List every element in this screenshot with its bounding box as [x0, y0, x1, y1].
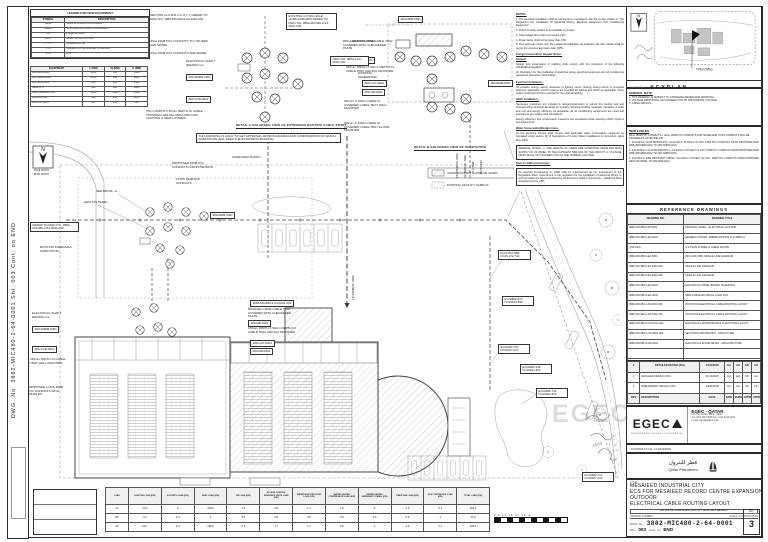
- note-item: 3. Total voltage drop shall not exceed 2…: [516, 34, 624, 37]
- cont-value: END: [663, 527, 673, 532]
- table-row: DF3.43.415.55.80.80.80.60.6121.9: [106, 514, 490, 523]
- table-row: 3882-MIC480-9-CP-0001-004SECTIONS AND DE…: [628, 330, 761, 340]
- title-block: TITLE MESAIEED INDUSTRIAL CITY ECS FOR M…: [626, 479, 762, 537]
- egec-logo: EGEC ENGINEERING HOUSE OF EXPERTISE: [627, 407, 688, 443]
- table-row: CL23.59150.01.62.81.17.551.55.1203.3: [106, 505, 490, 514]
- drawing-sheet: DWG. No. 3882-MIC480-2-64-0001 Sht. 003 …: [0, 0, 768, 542]
- note-item: (1) Regulation for the installation of e…: [516, 71, 624, 78]
- egec-logo-text: EGEC: [633, 417, 671, 431]
- rev-label: REV.: [744, 510, 759, 514]
- note-item: General:: [516, 58, 624, 61]
- vertical-drawing-number: DWG. No. 3882-MIC480-2-64-0001 Sht. 003 …: [11, 222, 17, 418]
- note-item: 3. 4Cx240mm² FIRE RESISTANT CABLE +1Cx12…: [629, 157, 759, 163]
- table-row: 3882-MIC480-9-AD-0001ELECTRICAL ROOM DET…: [628, 339, 761, 349]
- client-name-arabic: قطر للبترول: [668, 460, 697, 467]
- table-row: DL26.76.4155.05.51.70.76.824.55.1230.4: [106, 523, 490, 532]
- table-row: 3882-MIC480-9-EA-0001ELECTRICAL PANEL BO…: [628, 282, 761, 292]
- client-name-english: Qatar Petroleum: [668, 467, 697, 472]
- building: [75, 308, 470, 485]
- equipment-table: EQUIPMENTL (MM)W (MM)H (MM)480-MDB-00011…: [30, 66, 148, 107]
- load-table-panel: LOADLIGHTING LOAD (KW)SOCKETS LOAD (KW)H…: [105, 487, 490, 532]
- legend-panel: LEGEND FOR NEW EQUIPMENT SYMBOLDESCRIPTI…: [30, 9, 150, 59]
- equipment-table-panel: EQUIPMENTL (MM)W (MM)H (MM)480-MDB-00011…: [30, 66, 148, 107]
- egec-logo-triangle-icon: [672, 419, 682, 428]
- table-row: 3882-MIC480-9-EJ-0001(MIC-400)-0001 SING…: [628, 253, 761, 263]
- table-row: 3882-MIC480-9-EJ-0002-002SINGLE LINE DIA…: [628, 272, 761, 282]
- revision-table: 2DETAILED DESIGN (IFA)17/12/2018AHAHKNAH…: [627, 361, 761, 404]
- table-row: 3882-MIC480-9-EA-0002MDB-A DB ELECTRICAL…: [628, 291, 761, 301]
- north-letter: N: [41, 147, 45, 153]
- table-row: ATSATS: [32, 52, 149, 57]
- revision-panel: 2DETAILED DESIGN (IFA)17/12/2018AHAHKNAH…: [626, 360, 762, 406]
- notes-column: NOTES:-1. The electrical installation sh…: [514, 10, 626, 190]
- note-item: HVAC Installation:-: [516, 98, 624, 101]
- client-panel: قطر للبترول Qatar Petroleum: [626, 453, 762, 479]
- cont-label: Cont. on: [649, 528, 660, 532]
- dwg-number-row: DWG. No. 3882-MIC480-2-64-0001: [630, 520, 742, 527]
- detail-b-substation: [388, 24, 512, 178]
- note-item: 1. The electrical installation shall be …: [516, 18, 624, 28]
- keyplan-north-letter: N: [637, 13, 640, 18]
- new-cables-intro: 4Nos 150Ø PVC CONDUITS + 2Nos 150Ø PVC C…: [629, 134, 759, 141]
- keyplan-handwriting: [635, 45, 654, 59]
- revision-box: REV. 3: [743, 509, 760, 535]
- sht-label: Sht.: [630, 528, 635, 532]
- margin-stamp-box: [11, 447, 26, 519]
- scale-bar-ruler: [494, 517, 568, 523]
- reference-drawings-title: REFERENCE DRAWINGS: [627, 205, 761, 214]
- title-line-4: ELECTRICAL CABLE ROUTING LAYOUT: [630, 502, 758, 508]
- note-item: Water Conservation/Design notes:-: [516, 127, 624, 130]
- note-item: 5. This approval covers only the notatio…: [516, 43, 624, 50]
- keyplan-panel: N THIS DWG 4/12/18 KEYPLAN: [626, 6, 762, 88]
- sheet-row: Sht. 003 Cont. on END: [630, 527, 742, 532]
- table-row: LOADLIGHTING LOAD (KW)SOCKETS LOAD (KW)H…: [106, 488, 490, 505]
- note-item: 3. CABLE DETAILS:-: [629, 102, 759, 105]
- load-table: LOADLIGHTING LOAD (KW)SOCKETS LOAD (KW)H…: [105, 487, 490, 532]
- table-row: 3882-MIC480-2-64-0001-002OUTDOOR ELECTRI…: [628, 310, 761, 320]
- dwg-no-value: 3882-MIC480-2-64-0001: [647, 520, 733, 527]
- note-item: Energy Conservation Regular Notes:-: [516, 53, 624, 56]
- rev-value: 3: [749, 519, 754, 529]
- note-item: Energy efficiency and conservation measu…: [516, 118, 624, 125]
- reference-drawings-panel: REFERENCE DRAWINGS DRAWING NO.DRAWING TI…: [626, 204, 762, 360]
- contract-panel: CONTRACT No. LC19194900: [626, 444, 762, 453]
- north-arrow: N: [33, 146, 53, 168]
- note-item: Note for AMR provisioning:-: [516, 162, 624, 165]
- general-note-title: GENERAL NOTE:: [629, 91, 759, 95]
- table-row: [628, 349, 761, 359]
- note-item: All the plumbing fixtures shall comply w…: [516, 132, 624, 142]
- qatar-petroleum-logo: [706, 459, 720, 473]
- table-row: (765-A00)S.S PLAN-POWER & CABLE ROUTE: [628, 243, 761, 253]
- legend-title: LEGEND FOR NEW EQUIPMENT: [31, 10, 149, 17]
- drawing-number-label: DRAWING NUMBER: [630, 515, 653, 518]
- note-item: As required provisioning for AMR shall b…: [516, 168, 624, 186]
- table-row: 1DETAILED DESIGN (IFC)01/11/2018AHAHKNAH: [628, 372, 761, 383]
- new-cables-panel: NEW CABLES 4Nos 150Ø PVC CONDUITS + 2Nos…: [626, 126, 762, 204]
- note-item: 4. Power factor shall not be lower than …: [516, 39, 624, 42]
- note-item: Design and construction of building shal…: [516, 63, 624, 70]
- egec-address-3: e-mail: egec@qatar.net.qa: [691, 420, 758, 423]
- note-item: All possible energy saving measures in l…: [516, 86, 624, 96]
- equipment-cluster-a: [140, 203, 208, 269]
- reference-drawings-table: DRAWING NO.DRAWING TITLE3882-MIC480-0-00…: [627, 214, 761, 378]
- scale-row: DRAWING NUMBER SCALE: AS SHOWN @ A0: [630, 515, 758, 520]
- table-row: 3882-MIC480-0-00-0001DRAWING INDEX - ELE…: [628, 224, 761, 234]
- table-row: 0PRELIMINARY DESIGN (IFC)24/09/2018AHAHK…: [628, 383, 761, 394]
- note-item: 2. Drawn & cable window to be available …: [516, 29, 624, 32]
- egec-logo-subtitle: ENGINEERING HOUSE OF EXPERTISE: [631, 433, 683, 435]
- table-row: 3882-MIC480-2-64-0001-001OUTDOOR ELECTRI…: [628, 301, 761, 311]
- table-row: REVDESCRIPTIONDATEDRNCHKDAPPDAPPD: [628, 393, 761, 404]
- new-cables-items: 1. 4Cx240mm² CU/XLPE/SWA/PVC +1Cx120mm² …: [629, 141, 759, 163]
- egec-qatar-block: EGEC - QATAR P.O. Box 24149, Doha - Qata…: [688, 407, 761, 443]
- detail-a-cluster: [225, 16, 303, 122]
- keyplan-buildings: [671, 28, 722, 56]
- scale-bar: 0 5 10 15 20 25 m: [494, 514, 568, 523]
- table-row: 3882-MIC480-9-EJ-0002-001SINGLE LINE DIA…: [628, 262, 761, 272]
- note-item: Necessary provisions are included in des…: [516, 103, 624, 116]
- note-item: NOTES:-: [516, 13, 624, 16]
- egec-watermark: EGEC: [552, 400, 631, 429]
- consultant-panel: EGEC ENGINEERING HOUSE OF EXPERTISE EGEC…: [626, 406, 762, 444]
- note-item: 1. 4Cx240mm² CU/XLPE/SWA/PVC +1Cx120mm² …: [629, 141, 759, 147]
- keyplan-map: N THIS DWG: [627, 7, 761, 75]
- cad-note: THIS IS A CAD DRAWING AND MUST NOT BE AL…: [630, 509, 758, 514]
- contract-number: CONTRACT No. LC19194900: [631, 447, 671, 451]
- dwg-no-label: DWG. No.: [630, 522, 644, 526]
- left-margin-strip: DWG. No. 3882-MIC480-2-64-0001 Sht. 003 …: [7, 6, 29, 539]
- table-row: DRAWING NO.DRAWING TITLE: [628, 215, 761, 225]
- note-item: Electrical Installation:-: [516, 81, 624, 84]
- table-row: 2DETAILED DESIGN (IFA)17/12/2018AHAHKNAH: [628, 362, 761, 373]
- legend-table: SYMBOLDESCRIPTIONMDBMAIN DISTRIBUTION BO…: [31, 17, 149, 58]
- new-cables-title: NEW CABLES: [629, 129, 759, 133]
- this-dwg-label: THIS DWG: [696, 68, 713, 72]
- table-row: 3882-MIC480-9-CD-0012-002ELECTRICAL ROOM…: [628, 320, 761, 330]
- sht-value: 003: [638, 527, 646, 532]
- note-item: GENERAL NOTES:- 1- THE LENGTH OF CABLE A…: [516, 145, 624, 160]
- note-item: 2. 2(3Cx240mm² AL/XLPE/SWA/PVC) +1Cx240m…: [629, 149, 759, 155]
- corner-box: [33, 489, 97, 535]
- general-note-items: 1. THIS DRAWING IS SUBJECT TO KAHRAMAA R…: [629, 96, 759, 106]
- table-row: 480-LCP-0001457305610: [31, 101, 148, 106]
- table-row: 3882-MIC480-0-EA-0001GENERAL NOTES, ABBR…: [628, 234, 761, 244]
- general-note-panel: GENERAL NOTE: 1. THIS DRAWING IS SUBJECT…: [626, 88, 762, 126]
